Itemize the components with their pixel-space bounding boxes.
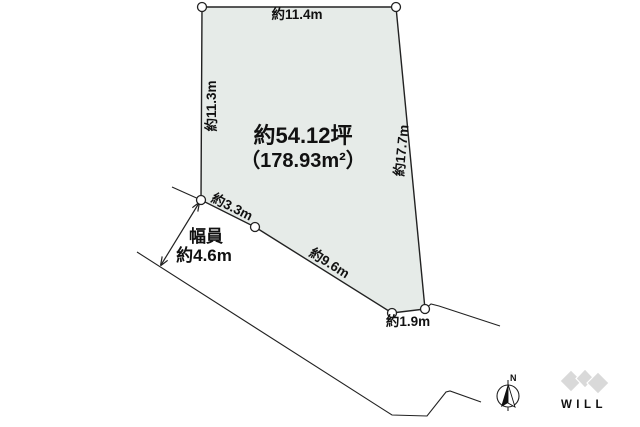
- compass: N: [497, 373, 519, 411]
- road-width-value: 約4.6m: [176, 245, 232, 265]
- vertex-marker: [197, 196, 206, 205]
- vertex-marker: [198, 3, 207, 12]
- dimension-label-bottom: 約1.9m: [386, 313, 430, 329]
- vertex-marker: [251, 223, 260, 232]
- will-logo: WILL: [560, 369, 609, 411]
- dimension-label-left: 約11.3m: [203, 80, 219, 131]
- site-plan-svg: 約11.4m 約11.3m 約17.7m 約3.3m 約9.6m 約1.9m 約…: [0, 0, 640, 427]
- area-label-sqm: （178.93m²）: [240, 149, 366, 172]
- north-label: N: [510, 373, 517, 383]
- dimension-label-top: 約11.4m: [271, 6, 322, 22]
- road-far-edge-line: [137, 252, 481, 416]
- will-logo-text: WILL: [561, 399, 607, 411]
- vertex-marker: [392, 3, 401, 12]
- road-width-title: 幅員: [189, 226, 223, 246]
- road-edge-lower-right-line: [425, 304, 500, 326]
- area-label-tsubo: 約54.12坪: [253, 123, 352, 148]
- site-plan-diagram: 約11.4m 約11.3m 約17.7m 約3.3m 約9.6m 約1.9m 約…: [0, 0, 640, 427]
- vertex-marker: [421, 305, 430, 314]
